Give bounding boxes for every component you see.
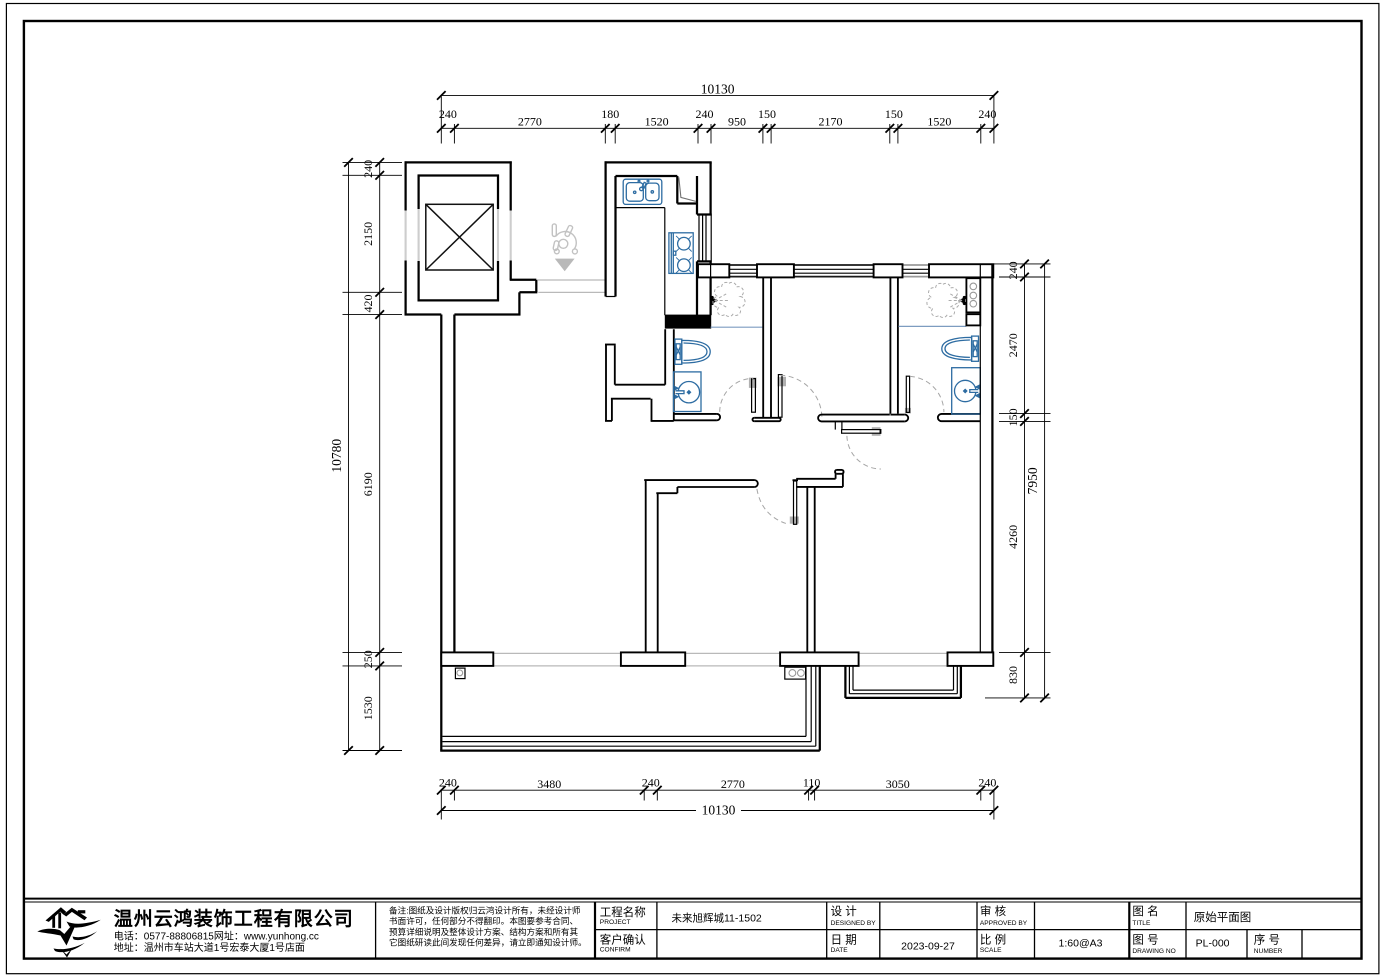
svg-text:240: 240 (978, 107, 996, 121)
svg-text:240: 240 (439, 107, 457, 121)
svg-text:日 期: 日 期 (831, 934, 857, 947)
svg-text:TITLE: TITLE (1132, 920, 1151, 927)
svg-text:830: 830 (1006, 666, 1020, 684)
svg-text:序 号: 序 号 (1254, 932, 1280, 946)
svg-text:4260: 4260 (1006, 525, 1020, 549)
svg-text:950: 950 (728, 115, 746, 129)
svg-text:2770: 2770 (721, 777, 745, 791)
svg-text:1520: 1520 (927, 115, 951, 129)
svg-text:240: 240 (978, 775, 996, 789)
svg-text:CONFIRM: CONFIRM (600, 947, 631, 954)
svg-text:110: 110 (803, 775, 821, 789)
svg-text:6190: 6190 (361, 472, 375, 496)
svg-text:10130: 10130 (701, 81, 735, 96)
svg-text:2150: 2150 (361, 222, 375, 246)
svg-text:电话：0577-88806815网址：www.yunhong: 电话：0577-88806815网址：www.yunhong.cc (114, 929, 319, 942)
svg-text:DATE: DATE (831, 947, 849, 954)
svg-text:240: 240 (696, 107, 714, 121)
svg-text:预算详细说明及整体设计方案、结构方案和所有其: 预算详细说明及整体设计方案、结构方案和所有其 (389, 926, 578, 937)
svg-text:240: 240 (439, 775, 457, 789)
svg-text:温州云鸿装饰工程有限公司: 温州云鸿装饰工程有限公司 (114, 907, 354, 930)
svg-text:150: 150 (758, 107, 776, 121)
svg-text:PL-000: PL-000 (1196, 938, 1230, 950)
svg-text:1520: 1520 (645, 115, 669, 129)
svg-text:1530: 1530 (361, 696, 375, 720)
svg-text:工程名称: 工程名称 (600, 905, 646, 919)
svg-text:420: 420 (361, 295, 375, 313)
svg-text:240: 240 (642, 775, 660, 789)
svg-text:PROJECT: PROJECT (600, 919, 631, 926)
svg-text:3480: 3480 (537, 777, 561, 791)
svg-text:DESIGNED BY: DESIGNED BY (831, 920, 877, 927)
svg-text:SCALE: SCALE (980, 947, 1002, 954)
svg-text:客户确认: 客户确认 (600, 932, 646, 946)
svg-text:DRAWING NO: DRAWING NO (1132, 948, 1175, 955)
svg-text:1:60@A3: 1:60@A3 (1059, 938, 1103, 950)
svg-text:比 例: 比 例 (980, 933, 1006, 947)
svg-text:设 计: 设 计 (831, 905, 858, 918)
svg-text:原始平面图: 原始平面图 (1194, 910, 1252, 924)
svg-text:150: 150 (1006, 408, 1020, 426)
svg-text:审 核: 审 核 (980, 904, 1007, 918)
svg-text:10130: 10130 (702, 803, 736, 818)
svg-text:图 号: 图 号 (1132, 933, 1158, 946)
svg-text:10780: 10780 (329, 439, 344, 473)
svg-text:未来旭辉城11-1502: 未来旭辉城11-1502 (672, 912, 762, 925)
svg-text:250: 250 (361, 650, 375, 668)
svg-text:它图纸研读此间发现任何差异，请立即通知设计师。: 它图纸研读此间发现任何差异，请立即通知设计师。 (389, 937, 587, 948)
svg-text:240: 240 (361, 160, 375, 178)
svg-text:APPROVED BY: APPROVED BY (980, 920, 1028, 927)
svg-text:2170: 2170 (819, 115, 843, 129)
svg-text:7950: 7950 (1025, 467, 1040, 494)
svg-text:2770: 2770 (518, 115, 542, 129)
svg-text:备注:图纸及设计版权归云鸿设计所有，未经设计师: 备注:图纸及设计版权归云鸿设计所有，未经设计师 (389, 905, 581, 916)
svg-text:地址：温州市车站大道1号宏泰大厦1号店面: 地址：温州市车站大道1号宏泰大厦1号店面 (114, 941, 305, 954)
svg-text:2470: 2470 (1006, 333, 1020, 357)
svg-text:书面许可，任何部分不得翻印。本图要参考合同、: 书面许可，任何部分不得翻印。本图要参考合同、 (389, 915, 578, 926)
svg-text:180: 180 (601, 107, 619, 121)
svg-text:150: 150 (885, 107, 903, 121)
svg-text:240: 240 (1006, 261, 1020, 279)
svg-text:图 名: 图 名 (1132, 904, 1158, 918)
svg-text:NUMBER: NUMBER (1254, 948, 1283, 955)
svg-text:2023-09-27: 2023-09-27 (901, 941, 955, 953)
svg-text:3050: 3050 (886, 777, 910, 791)
